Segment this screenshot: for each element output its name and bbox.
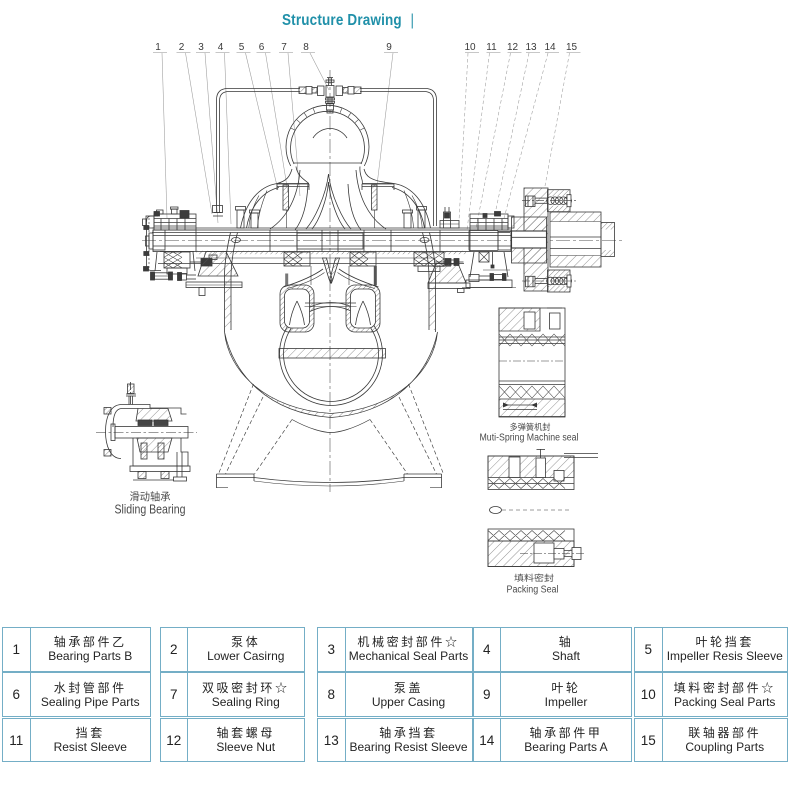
svg-text:Muti-Spring Machine seal: Muti-Spring Machine seal [480,433,579,444]
svg-text:9: 9 [386,42,392,53]
svg-text:15: 15 [566,42,578,53]
svg-text:2: 2 [179,42,185,53]
svg-text:1: 1 [155,42,161,53]
svg-text:7: 7 [281,42,287,53]
svg-text:5: 5 [239,42,245,53]
svg-text:8: 8 [303,42,309,53]
svg-text:13: 13 [525,42,537,53]
svg-text:6: 6 [259,42,265,53]
svg-text:多弹簧机封: 多弹簧机封 [510,422,551,432]
svg-text:Sliding Bearing: Sliding Bearing [115,502,186,517]
svg-text:14: 14 [544,42,556,53]
svg-text:4: 4 [218,42,224,53]
svg-text:3: 3 [198,42,204,53]
svg-text:12: 12 [507,42,519,53]
svg-text:填料密封: 填料密封 [514,573,555,583]
svg-text:10: 10 [464,42,476,53]
svg-text:Packing Seal: Packing Seal [507,585,559,596]
svg-text:11: 11 [486,42,497,53]
